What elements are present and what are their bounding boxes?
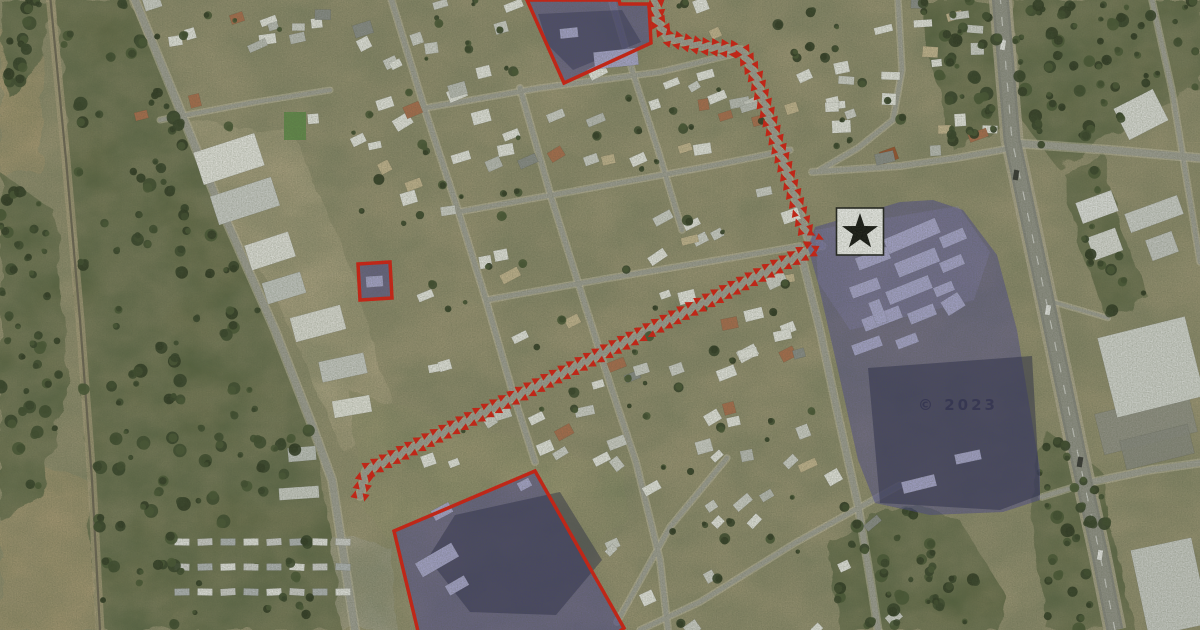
image-grain — [0, 0, 1200, 630]
map-viewport[interactable]: © 2023 — [0, 0, 1200, 630]
imagery-watermark: © 2023 — [918, 396, 998, 414]
satellite-map[interactable]: © 2023 — [0, 0, 1200, 630]
